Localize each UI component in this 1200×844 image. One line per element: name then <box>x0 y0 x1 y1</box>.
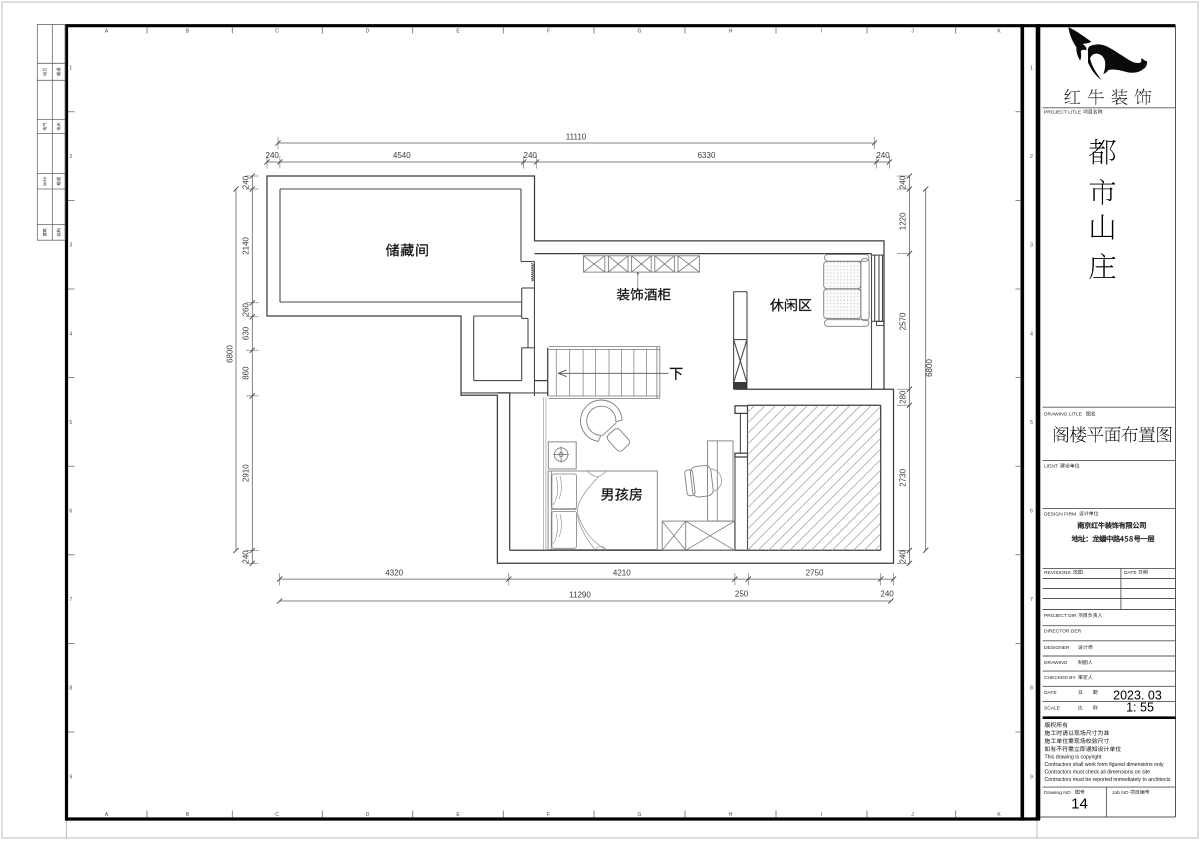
svg-text:I: I <box>821 812 822 818</box>
svg-text:DATE: DATE <box>1044 690 1057 696</box>
svg-text:260: 260 <box>242 302 251 316</box>
svg-text:This drawing is copyright: This drawing is copyright <box>1045 755 1103 761</box>
svg-text:DRAWING LITLE: DRAWING LITLE <box>1044 412 1083 418</box>
svg-text:Contractors shall work form fi: Contractors shall work form figured dime… <box>1045 762 1164 768</box>
svg-text:1: 1 <box>1030 66 1033 72</box>
svg-text:DESIGN FIRM: DESIGN FIRM <box>1044 511 1076 517</box>
svg-text:G: G <box>638 29 642 35</box>
svg-text:9: 9 <box>1030 774 1033 780</box>
svg-text:H: H <box>729 812 733 818</box>
svg-text:240: 240 <box>524 151 538 160</box>
svg-text:C: C <box>275 29 279 35</box>
svg-text:2140: 2140 <box>242 236 251 254</box>
svg-text:630: 630 <box>242 326 251 340</box>
svg-text:5: 5 <box>1030 420 1033 426</box>
svg-text:4: 4 <box>1030 331 1033 337</box>
svg-text:6330: 6330 <box>698 151 716 160</box>
svg-text:LIENT: LIENT <box>1044 464 1058 470</box>
svg-text:11290: 11290 <box>569 591 591 600</box>
svg-text:Job NO: Job NO <box>1112 790 1129 796</box>
svg-text:4320: 4320 <box>385 568 403 577</box>
svg-text:8: 8 <box>1030 686 1033 692</box>
svg-text:240: 240 <box>266 151 280 160</box>
svg-text:3: 3 <box>69 243 72 249</box>
svg-text:SCALE: SCALE <box>1044 706 1061 712</box>
svg-text:DESIGNER: DESIGNER <box>1044 645 1070 651</box>
svg-text:2570: 2570 <box>899 312 908 330</box>
svg-text:11110: 11110 <box>566 133 587 142</box>
svg-text:B: B <box>186 29 190 35</box>
svg-text:PROJECT DIR: PROJECT DIR <box>1044 613 1077 619</box>
svg-text:A: A <box>105 29 109 35</box>
svg-text:240: 240 <box>880 590 894 599</box>
svg-text:14: 14 <box>1071 796 1088 813</box>
svg-text:2730: 2730 <box>899 468 908 486</box>
svg-text:2910: 2910 <box>242 464 251 482</box>
svg-text:4540: 4540 <box>393 151 411 160</box>
svg-text:8: 8 <box>69 686 72 692</box>
svg-text:K: K <box>997 29 1001 35</box>
svg-text:Contractors must check all dim: Contractors must check all dimensions on… <box>1045 770 1151 776</box>
svg-text:C: C <box>275 812 279 818</box>
svg-text:7: 7 <box>69 597 72 603</box>
svg-text:PROJECT LITLE: PROJECT LITLE <box>1044 110 1082 116</box>
svg-text:6800: 6800 <box>925 359 934 377</box>
svg-text:280: 280 <box>899 390 908 404</box>
svg-text:860: 860 <box>242 366 251 380</box>
svg-text:DATE: DATE <box>1124 570 1137 576</box>
svg-text:4210: 4210 <box>613 568 631 577</box>
svg-text:4: 4 <box>69 331 72 337</box>
svg-text:3: 3 <box>1030 243 1033 249</box>
svg-text:1: 55: 1: 55 <box>1126 701 1154 715</box>
svg-text:7: 7 <box>1030 597 1033 603</box>
svg-text:J: J <box>911 812 914 818</box>
svg-text:2: 2 <box>1030 154 1033 160</box>
svg-text:F: F <box>547 29 550 35</box>
svg-text:240: 240 <box>899 550 908 564</box>
svg-text:240: 240 <box>242 175 251 189</box>
svg-text:DRAWING: DRAWING <box>1044 660 1068 666</box>
svg-text:6: 6 <box>69 509 72 515</box>
svg-text:2: 2 <box>69 154 72 160</box>
svg-text:DIRECTOR DER: DIRECTOR DER <box>1044 628 1082 634</box>
svg-text:5: 5 <box>69 420 72 426</box>
svg-text:A: A <box>105 812 109 818</box>
svg-text:6800: 6800 <box>225 345 234 363</box>
svg-text:H: H <box>729 29 733 35</box>
svg-text:J: J <box>911 29 914 35</box>
svg-text:6: 6 <box>1030 509 1033 515</box>
svg-text:Drawing NO: Drawing NO <box>1044 790 1071 796</box>
svg-text:REVISIONS: REVISIONS <box>1044 570 1071 576</box>
svg-text:240: 240 <box>242 550 251 564</box>
svg-text:F: F <box>547 812 550 818</box>
svg-text:D: D <box>366 29 370 35</box>
svg-text:9: 9 <box>69 774 72 780</box>
svg-text:K: K <box>997 812 1001 818</box>
svg-text:240: 240 <box>876 151 890 160</box>
svg-text:2750: 2750 <box>806 568 824 577</box>
svg-text:B: B <box>186 812 190 818</box>
svg-text:240: 240 <box>899 175 908 189</box>
svg-text:1220: 1220 <box>899 212 908 230</box>
svg-text:I: I <box>821 29 822 35</box>
svg-text:E: E <box>456 29 460 35</box>
svg-text:CHECKED BY: CHECKED BY <box>1044 675 1077 681</box>
svg-text:1: 1 <box>69 66 72 72</box>
svg-text:D: D <box>366 812 370 818</box>
svg-text:E: E <box>456 812 460 818</box>
svg-text:Contractors must be reported i: Contractors must be reported immediately… <box>1045 777 1171 783</box>
svg-text:250: 250 <box>735 590 749 599</box>
svg-text:G: G <box>638 812 642 818</box>
